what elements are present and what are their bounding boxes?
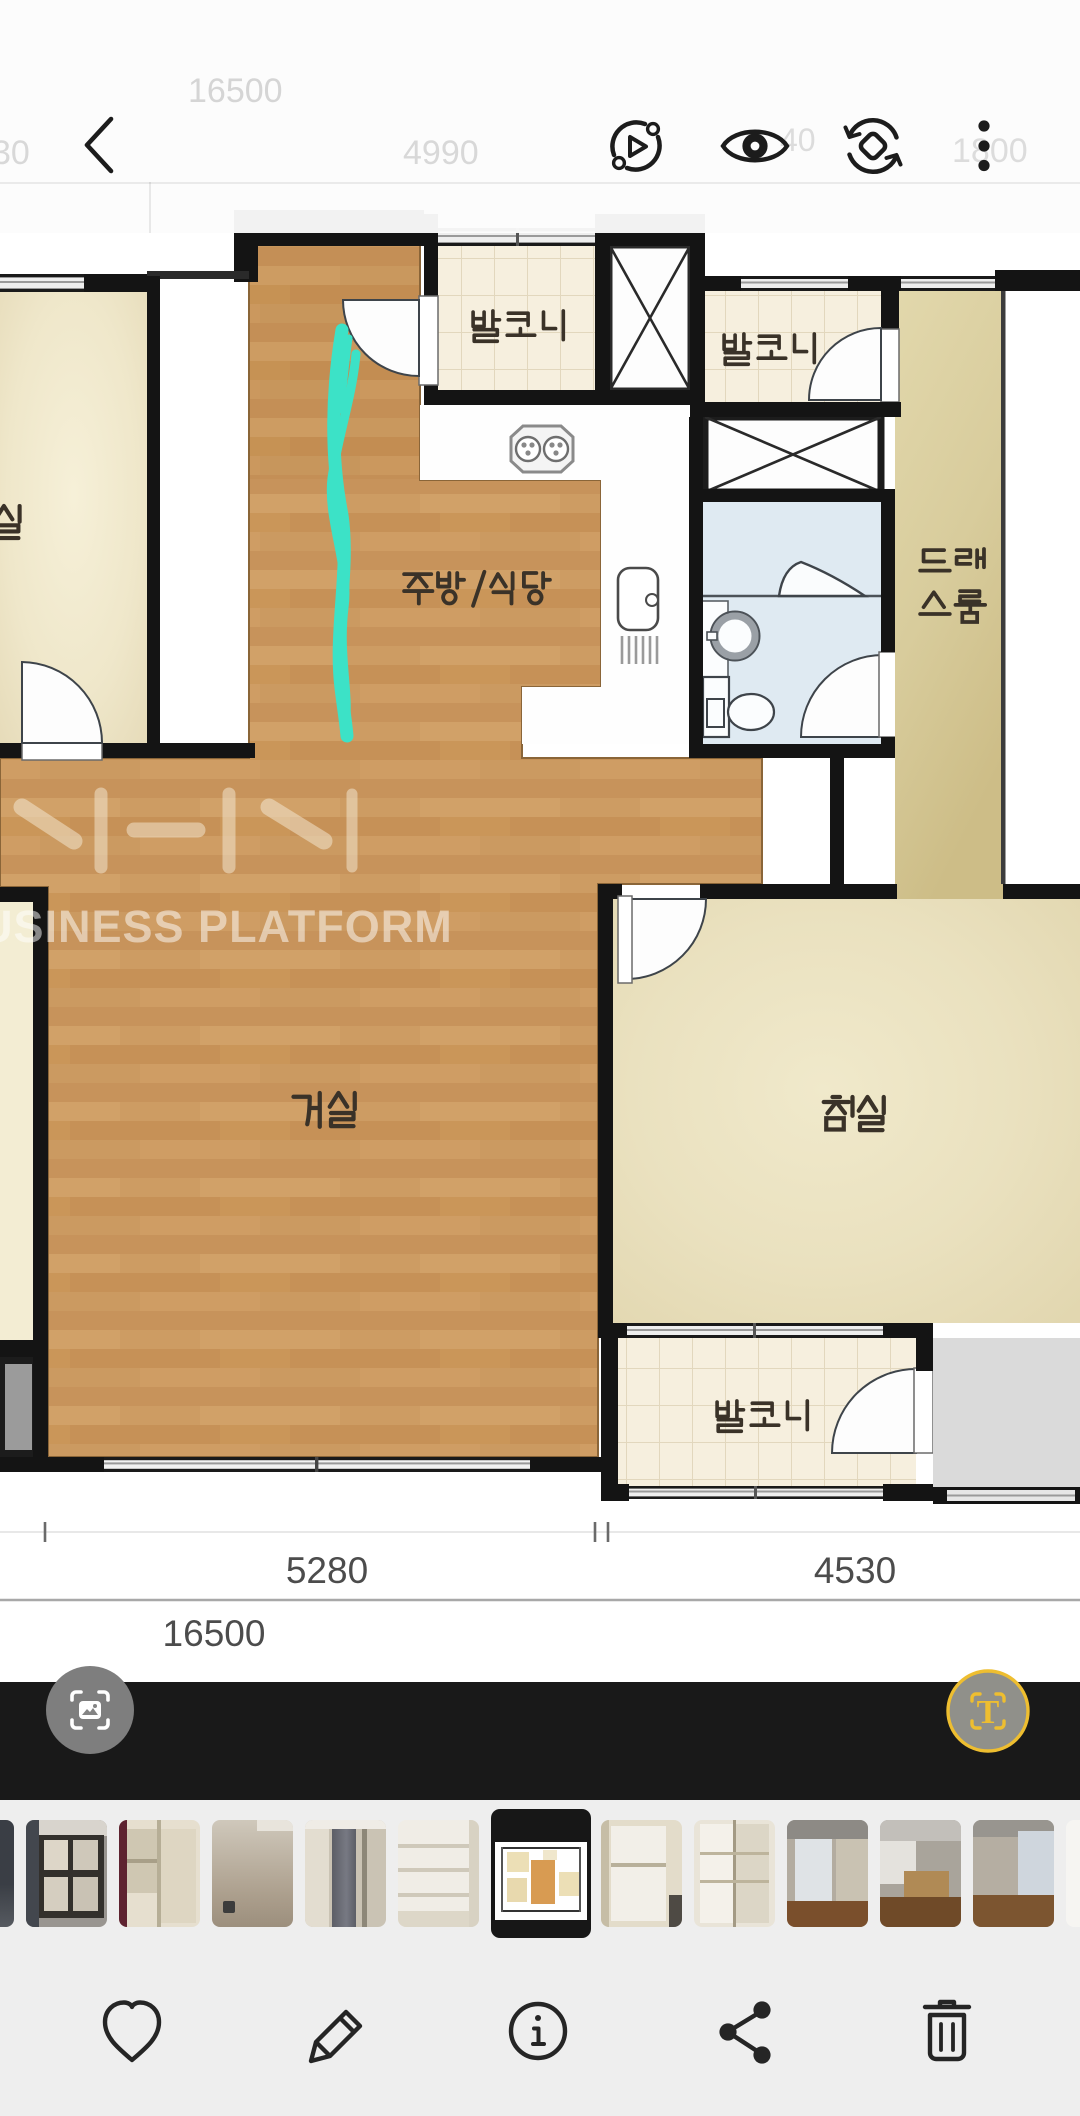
svg-text:USINESS PLATFORM: USINESS PLATFORM xyxy=(0,901,453,952)
svg-text:4530: 4530 xyxy=(814,1550,896,1591)
svg-text:5280: 5280 xyxy=(286,1550,368,1591)
svg-text:16500: 16500 xyxy=(163,1613,266,1654)
svg-text:T: T xyxy=(977,1694,1000,1731)
